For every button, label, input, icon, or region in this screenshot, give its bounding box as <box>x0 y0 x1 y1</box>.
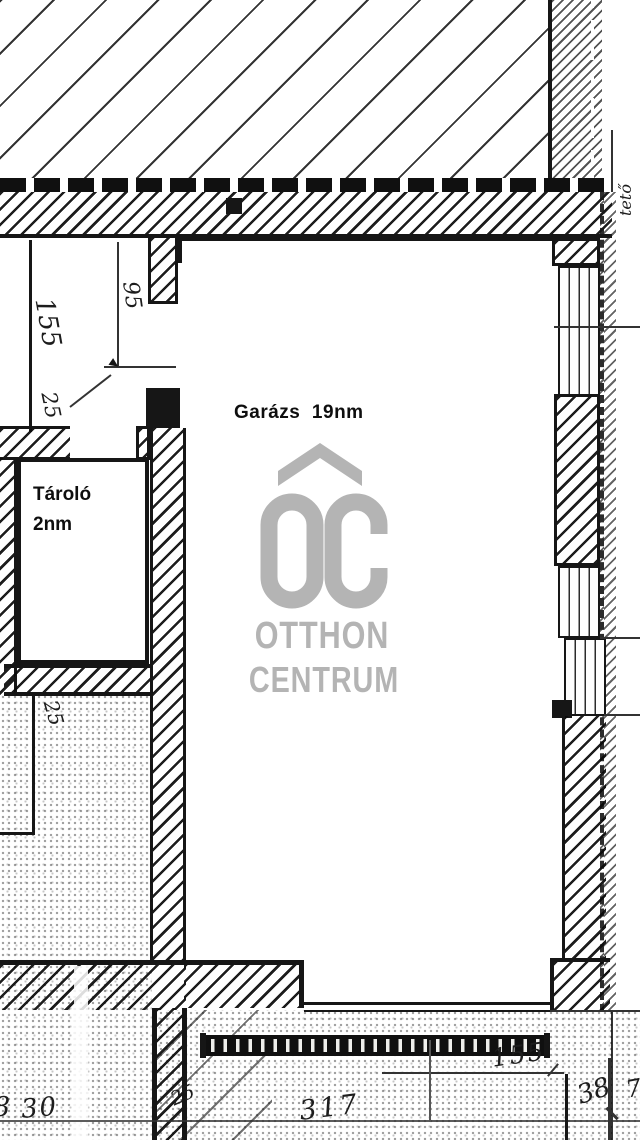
garage-door-cap-left <box>200 1033 206 1058</box>
door-hinge-tick <box>176 241 182 263</box>
garage-left-wall-block <box>146 388 180 428</box>
garage-room-label: Garázs 19nm <box>234 402 364 424</box>
dim-vline-568 <box>565 1074 568 1140</box>
right-plot-line-top <box>611 130 613 192</box>
floor-plan-scan: OTTHON CENTRUM Garázs 19nm Tároló 2nm 15… <box>0 0 640 1140</box>
roof-chevron-icon <box>278 443 362 486</box>
monogram-c-gap <box>361 534 395 568</box>
storage-top-wall-left <box>0 426 70 460</box>
right-ref-line-1 <box>554 326 640 328</box>
roof-hatch-area <box>0 0 548 178</box>
dim-text-317: 317 <box>298 1091 361 1125</box>
garage-topleft-pier <box>148 238 178 304</box>
storage-room-label: Tároló <box>33 484 91 506</box>
margin-note-text: tető <box>618 184 634 216</box>
dim-text-155-door: 155 <box>490 1039 547 1071</box>
right-window-middle <box>558 566 600 638</box>
neighbour-wall-inner-dash <box>591 0 594 190</box>
right-wall-pier <box>554 394 600 566</box>
dim-text-30: 30 <box>20 1094 59 1123</box>
storage-left-wall <box>0 458 17 696</box>
dim-text-155-left: 155 <box>30 296 64 349</box>
storage-area-label: 2nm <box>33 514 72 536</box>
monogram-o-shape <box>269 502 315 600</box>
dim-text-partial-8: 8 <box>0 1094 10 1121</box>
dim-text-95: 95 <box>118 280 144 311</box>
dim-vline-430 <box>429 1040 431 1122</box>
door-swing-line <box>69 374 111 408</box>
dim-text-25-lowerleft: 25 <box>41 698 67 728</box>
garage-top-wall-line <box>176 236 554 241</box>
right-wall-solid <box>562 716 606 960</box>
dim-text-25-left: 25 <box>37 390 63 421</box>
boundary-dashed-line <box>0 178 612 192</box>
otthon-centrum-watermark: OTTHON CENTRUM <box>225 438 425 708</box>
storage-top-wall-right <box>136 426 150 460</box>
garage-left-wall <box>150 428 186 962</box>
garage-floor-block <box>184 960 304 1008</box>
dim-95-extension-line <box>117 242 119 368</box>
right-window-upper <box>558 266 600 396</box>
scan-white-streak <box>74 966 88 1140</box>
top-exterior-wall-band <box>0 192 612 238</box>
watermark-line2: CENTRUM <box>249 660 399 700</box>
dim-line-155 <box>382 1072 564 1074</box>
right-ref-line-3 <box>604 714 640 716</box>
right-wall-cap <box>552 238 600 266</box>
watermark-line1: OTTHON <box>255 615 390 657</box>
left-room-wall-line <box>29 240 32 432</box>
storage-bottom-wall <box>4 664 150 696</box>
right-ref-line-2 <box>600 637 640 639</box>
scan-blob-mark <box>226 198 242 214</box>
right-wall-foot <box>550 958 610 1012</box>
lower-left-wall-seg-h <box>0 832 35 835</box>
lower-left-wall-seg-v <box>32 695 35 835</box>
lower-left-dense-band <box>0 960 186 1010</box>
